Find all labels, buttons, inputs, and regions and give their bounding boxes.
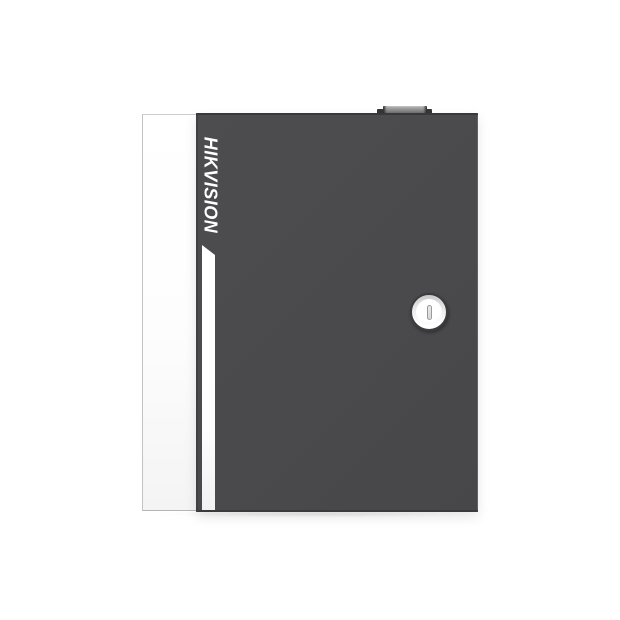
side-panel bbox=[142, 114, 196, 511]
accent-stripe bbox=[202, 245, 215, 510]
device-enclosure: HIKVISION bbox=[0, 0, 620, 620]
front-door-panel: HIKVISION bbox=[196, 113, 478, 512]
lock-face bbox=[416, 299, 442, 325]
product-photo: HIKVISION bbox=[0, 0, 620, 620]
ground-shadow bbox=[150, 511, 472, 517]
keyhole-lock bbox=[410, 293, 448, 331]
brand-logo-text: HIKVISION bbox=[200, 137, 221, 234]
keyhole-slot bbox=[427, 305, 432, 320]
